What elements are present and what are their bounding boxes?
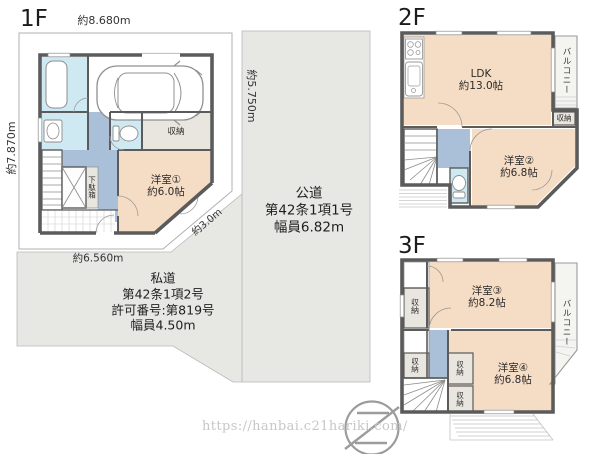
ldk-name: LDK xyxy=(471,68,492,80)
floor-1f-label: 1F xyxy=(20,6,48,32)
stairs-1f xyxy=(42,150,62,210)
bedroom4-size: 約6.8帖 xyxy=(494,374,532,386)
dim-top: 約8.680m xyxy=(77,12,130,28)
car-icon xyxy=(97,61,203,125)
toilet-icon-1f xyxy=(113,126,138,141)
toilet-room-2f xyxy=(450,168,468,203)
private-road-line: 幅員4.50m xyxy=(111,318,214,334)
hall-2f xyxy=(437,129,470,168)
hall-3f xyxy=(427,330,448,378)
bathtub-icon xyxy=(46,61,67,108)
public-road-label: 公道 第42条1項1号 幅員6.82m xyxy=(265,186,353,237)
roof-hatch-3f xyxy=(450,414,553,440)
roof-hatch-2f xyxy=(399,190,447,207)
washbasin-icon xyxy=(44,120,62,142)
watermark-url: https://hanbai.c21hariki.com/ xyxy=(202,419,408,434)
private-road-label: 私道 第42条1項2号 許可番号:第819号 幅員4.50m xyxy=(111,271,214,334)
private-road-line: 私道 xyxy=(111,271,214,287)
closet-2f-label: 収納 xyxy=(557,113,572,124)
floor-2f-label: 2F xyxy=(398,5,426,31)
dim-right: 約5.750m xyxy=(244,69,260,122)
private-road-line: 許可番号:第819号 xyxy=(111,302,214,318)
public-road-line: 幅員6.82m xyxy=(265,220,353,237)
public-road-line: 公道 xyxy=(265,186,353,203)
bedroom1-name: 洋室① xyxy=(151,174,181,186)
balcony-2f-label: バルコニー xyxy=(560,47,572,95)
closet-3f-label: 収納 xyxy=(455,361,466,376)
closet-3f-label: 収納 xyxy=(455,392,466,407)
closet-3f-label: 収納 xyxy=(410,358,421,373)
bedroom4-name: 洋室④ xyxy=(498,362,528,374)
floor-1f-plan xyxy=(38,53,212,233)
floorplan-page: 1F 2F 3F 約8.680m 約7.870m 約5.750m 約6.560m… xyxy=(0,0,600,454)
shoe-cabinet-label: 下駄箱 xyxy=(87,176,98,199)
bedroom2-size: 約6.8帖 xyxy=(500,167,538,179)
stairs-3f xyxy=(402,378,448,412)
closet-1f-label: 収納 xyxy=(167,125,184,137)
entrance-porch xyxy=(42,210,115,232)
stairs-2f xyxy=(404,129,437,185)
floor-3f-label: 3F xyxy=(398,233,426,259)
bedroom1-size: 約6.0帖 xyxy=(147,186,185,198)
public-road-line: 第42条1項1号 xyxy=(265,203,353,220)
toilet-icon-2f xyxy=(453,176,466,191)
bedroom2-name: 洋室② xyxy=(504,155,534,167)
dim-left: 約7.870m xyxy=(3,121,19,174)
bedroom3-name: 洋室③ xyxy=(472,285,502,297)
private-road-line: 第42条1項2号 xyxy=(111,286,214,302)
shoe-cabinet-box xyxy=(62,167,86,208)
kitchen-counter xyxy=(404,37,424,98)
bedroom3-size: 約8.2帖 xyxy=(468,297,506,309)
closet-3f-label: 収納 xyxy=(410,298,421,314)
floor-2f-plan xyxy=(399,31,577,209)
ldk-size: 約13.0帖 xyxy=(459,80,503,92)
dim-bottom: 約6.560m xyxy=(73,251,124,266)
balcony-3f-label: バルコニー xyxy=(560,299,572,347)
